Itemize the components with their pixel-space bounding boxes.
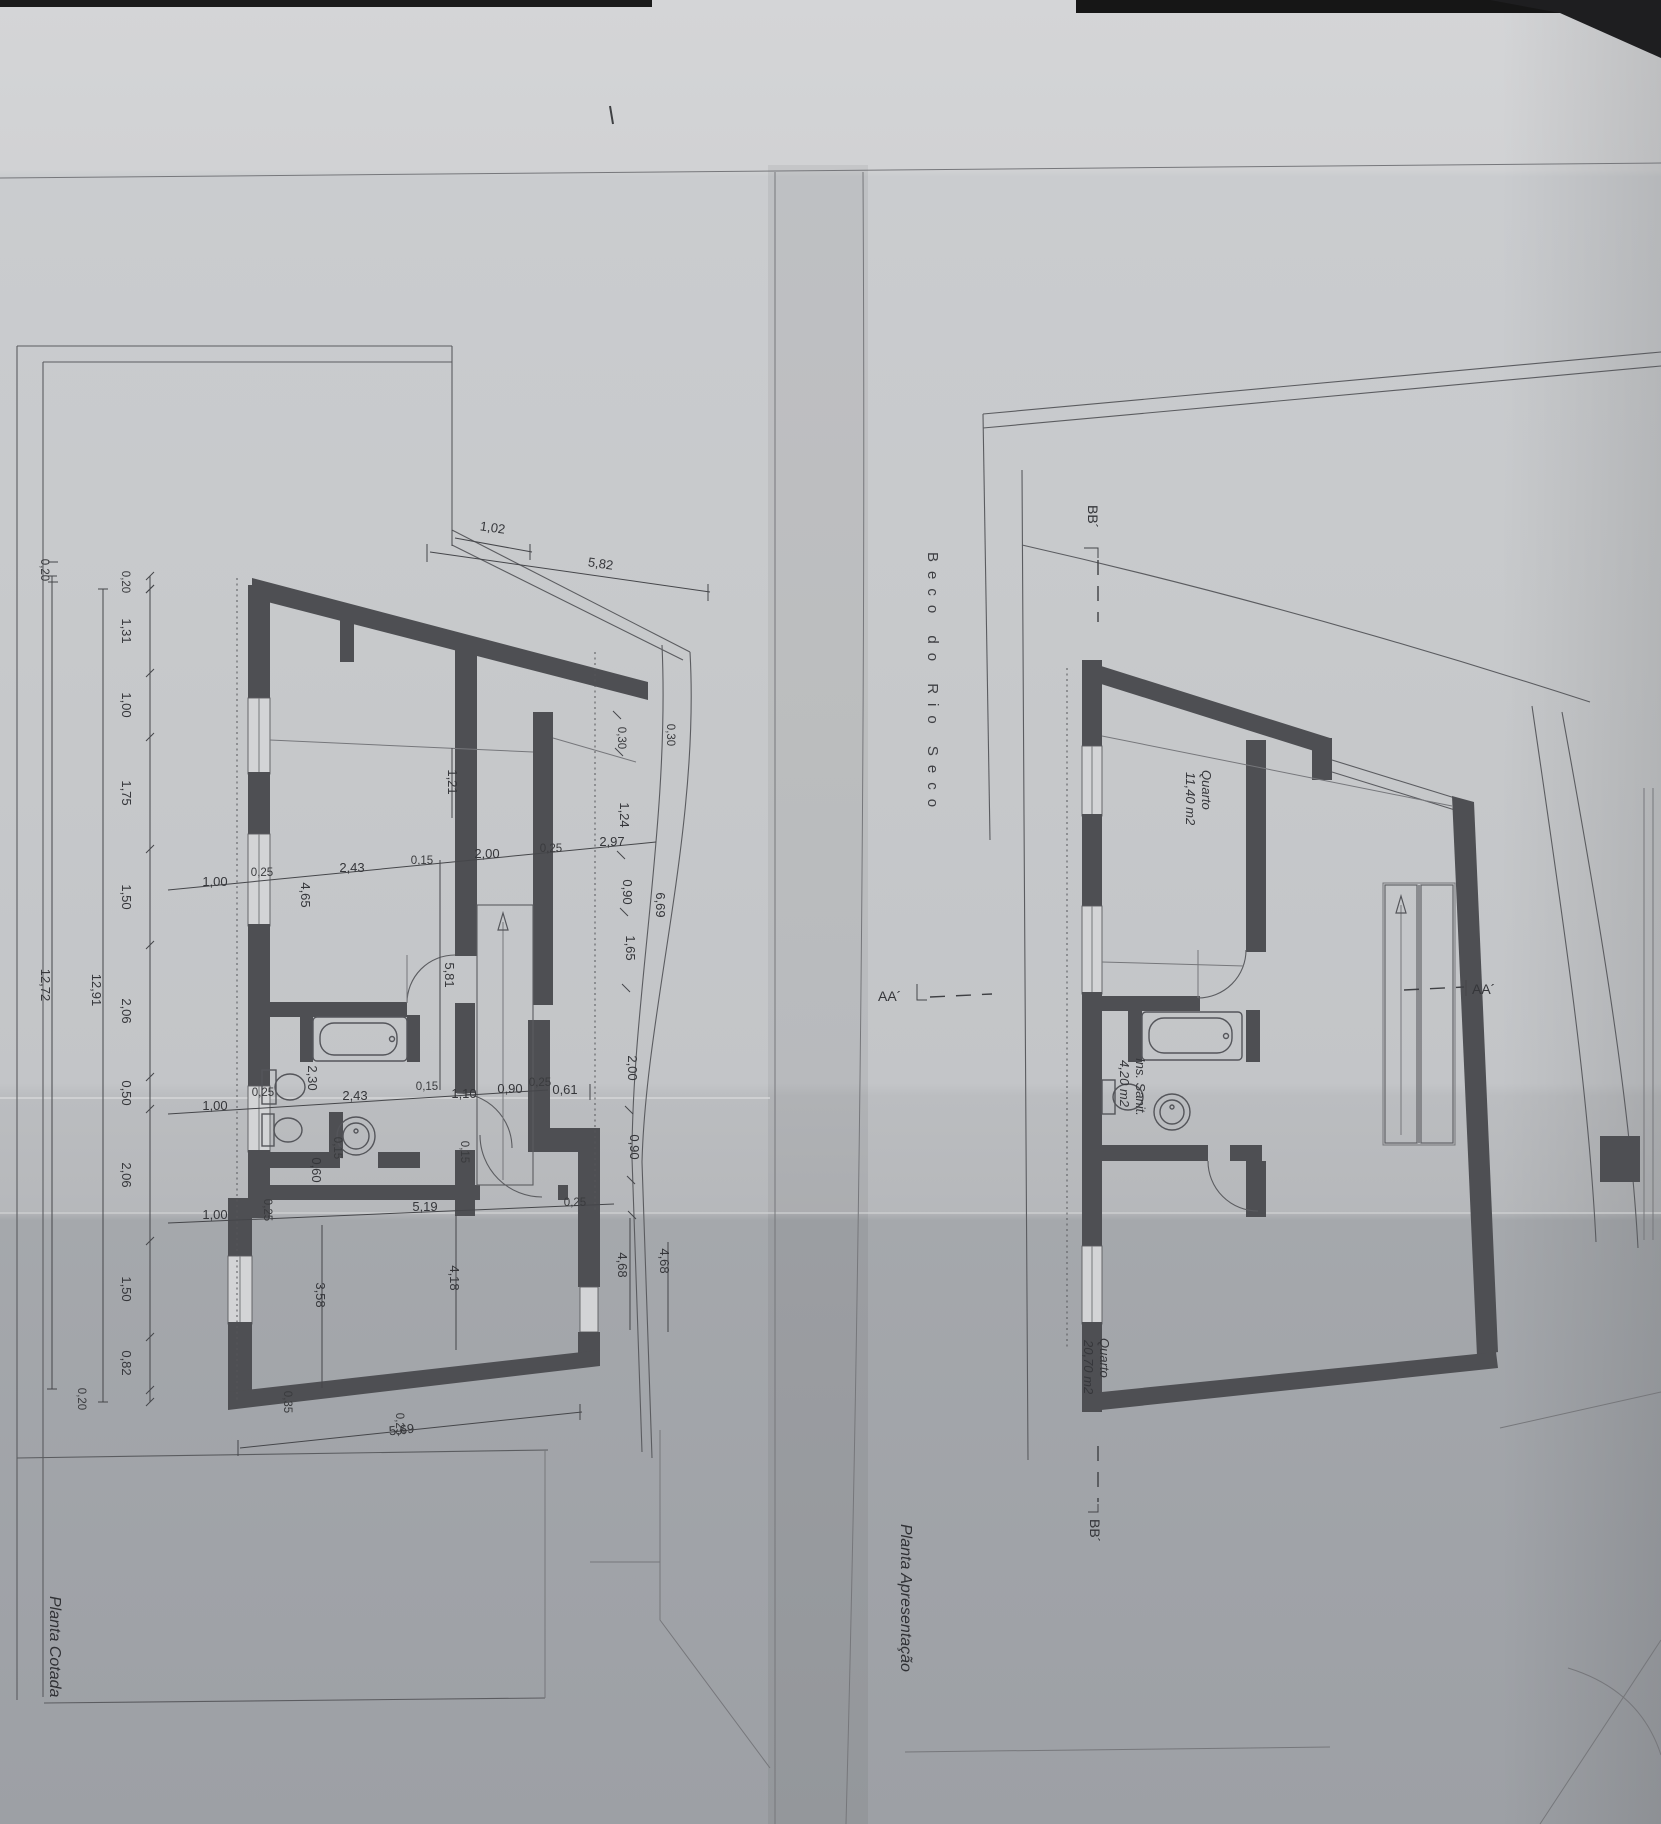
scanned-sheet: 1,02 5,82 0,20 1,31 1,00 1,75 1,50 2,06 … (0, 0, 1661, 1824)
dim-chain-right-5: 2,00 (625, 1055, 640, 1080)
dim-chain-left-10: 0,20 (75, 1388, 87, 1410)
section-aa-right-label: AA´ (1472, 981, 1495, 997)
wall-bath-top (270, 1002, 407, 1017)
dim-chain-left-5: 2,06 (119, 998, 134, 1023)
dim-row-lower-0: 1,00 (202, 1207, 227, 1222)
dim-row-upper-4: 0,15 (411, 855, 433, 867)
dim-row-middle-1: 0,25 (252, 1087, 274, 1099)
dim-chain-outer-top: 0,20 (38, 559, 50, 581)
dim-row-middle-3: 2,43 (342, 1088, 367, 1103)
edge-shadow (1500, 0, 1661, 1824)
dim-interior-060: 0,60 (309, 1157, 324, 1182)
dim-interior-015b: 0,15 (458, 1141, 470, 1163)
dim-row-middle-2: 2,30 (305, 1065, 320, 1090)
room-label-sanit-name: Ins. Sanit. (1133, 1058, 1148, 1116)
room-label-quarto2-area: 20,70 m2 (1081, 1339, 1096, 1395)
room-label-quarto1-name: Quarto (1199, 770, 1214, 810)
dim-chain-left-8: 1,50 (119, 1276, 134, 1301)
dim-row-upper-7: 2,97 (599, 834, 624, 849)
dim-chain-right-total: 6,69 (653, 892, 668, 917)
dim-row-upper-3: 2,43 (339, 860, 364, 875)
dim-chain-left-2: 1,00 (119, 692, 134, 717)
dim-chain-right-2: 1,24 (617, 802, 632, 827)
dim-total-inner: 12,91 (89, 974, 104, 1007)
dim-row-middle-8: 0,61 (552, 1082, 577, 1097)
dim-lower-right-1: 4,68 (657, 1248, 672, 1273)
dim-row-upper-6: 0,25 (540, 843, 562, 855)
dim-interior-121: 1,21 (445, 769, 460, 794)
room-label-sanit-area: 4,20 m2 (1117, 1060, 1132, 1108)
dim-chain-right-4: 1,65 (623, 935, 638, 960)
dim-row-lower-1: 0,25 (261, 1199, 273, 1221)
dim-interior-418: 4,18 (447, 1265, 462, 1290)
dim-interior-581: 5,81 (442, 962, 457, 987)
dim-chain-right-3: 0,90 (620, 879, 635, 904)
right-plan-title: Planta Apresentação (897, 1524, 914, 1672)
section-bb-bottom-label: BB´ (1087, 1519, 1103, 1542)
wall-stub-top (340, 610, 354, 662)
dim-interior-358: 3,58 (313, 1282, 328, 1307)
left-plan-title: Planta Cotada (46, 1596, 63, 1698)
wall-hall-left-right-plan (1246, 740, 1266, 952)
dim-corner-a: 0,35 (281, 1391, 293, 1413)
section-aa-left-label: AA´ (878, 988, 901, 1004)
dim-chain-left-9: 0,82 (119, 1350, 134, 1375)
dim-chain-left-0: 0,20 (119, 571, 131, 593)
room-label-quarto1-area: 11,40 m2 (1183, 772, 1198, 826)
dim-row-middle-4: 0,15 (416, 1081, 438, 1093)
dim-row-upper-1: 0,25 (251, 867, 273, 879)
dim-row-middle-7: 0,25 (529, 1077, 551, 1089)
dim-chain-left-3: 1,75 (119, 780, 134, 805)
dim-chain-left-6: 0,50 (119, 1080, 134, 1105)
fold-shadow-band (768, 165, 868, 1824)
dim-lower-right-0: 4,68 (615, 1252, 630, 1277)
dim-row-middle-0: 1,00 (202, 1098, 227, 1113)
dim-chain-left-7: 2,06 (119, 1162, 134, 1187)
dim-row-upper-2: 4,65 (298, 882, 313, 907)
dim-chain-right-6: 0,90 (627, 1134, 642, 1159)
section-bb-top-label: BB´ (1085, 505, 1101, 528)
dim-chain-left-4: 1,50 (119, 884, 134, 909)
dim-chain-left-1: 1,31 (119, 618, 134, 643)
room-label-quarto2-name: Quarto (1097, 1338, 1112, 1378)
dim-chain-right-0: 0,30 (615, 727, 627, 749)
neighbor-wall-block (1600, 1136, 1640, 1182)
dim-row-upper-0: 1,00 (202, 874, 227, 889)
wall-stair-right (533, 712, 553, 1005)
dim-corner-b: 0,25 (393, 1413, 405, 1435)
wall-hall-bottom (252, 1185, 480, 1200)
street-name-label: Beco do Rio Seco (924, 552, 941, 816)
dim-interior-015a: 0,15 (331, 1137, 343, 1159)
dim-stair-corner: 0,25 (564, 1197, 586, 1209)
wall-bath-top-right-plan (1100, 996, 1200, 1011)
dim-row-lower-2: 5,19 (412, 1199, 437, 1214)
dim-row-middle-6: 0,90 (497, 1081, 522, 1096)
dim-chain-right-1: 0,30 (664, 724, 676, 746)
dim-row-middle-5: 1,10 (451, 1086, 476, 1101)
scan-edge-bar-left (0, 0, 652, 7)
floorplan-scan: 1,02 5,82 0,20 1,31 1,00 1,75 1,50 2,06 … (0, 0, 1661, 1824)
wall-hall-left (455, 650, 477, 956)
dim-total-outer: 12,72 (38, 969, 53, 1002)
dim-row-upper-5: 2,00 (474, 846, 499, 861)
